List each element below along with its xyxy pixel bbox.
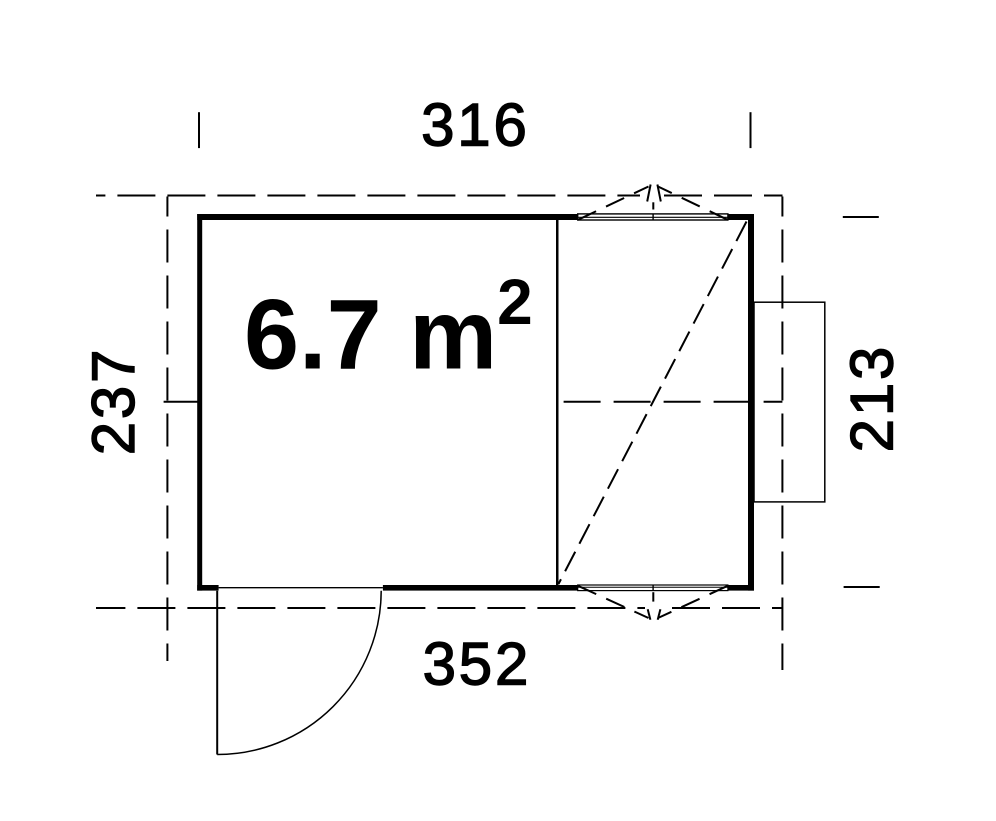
svg-text:213: 213	[839, 344, 906, 453]
svg-text:316: 316	[421, 91, 530, 158]
svg-text:352: 352	[423, 631, 532, 698]
svg-text:237: 237	[80, 347, 147, 456]
svg-text:6.7 m2: 6.7 m2	[244, 266, 533, 390]
